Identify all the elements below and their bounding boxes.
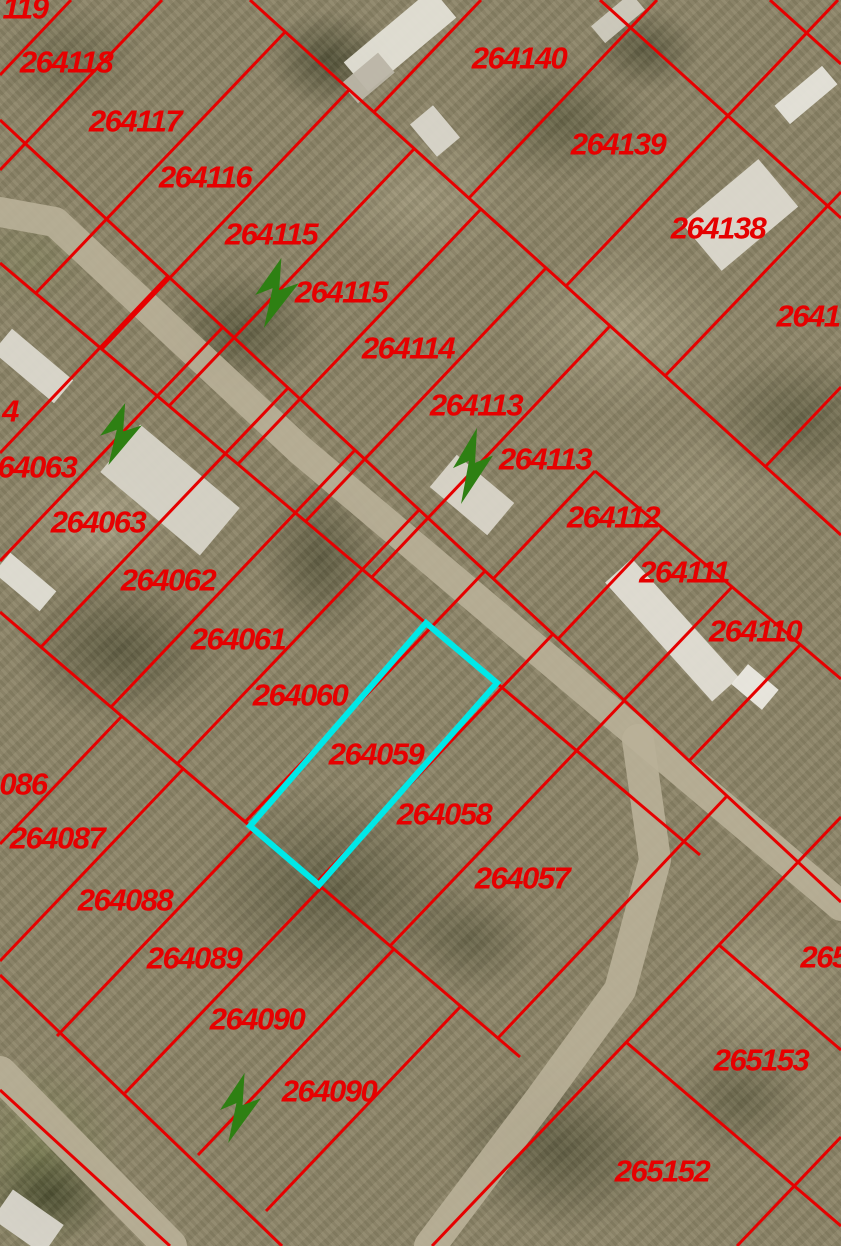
parcel-label: 265152 — [615, 1156, 709, 1187]
parcel-label: 264117 — [89, 106, 181, 137]
parcel-label: 264090 — [282, 1076, 376, 1107]
building-roof — [731, 664, 778, 710]
parcel-boundary-line — [198, 949, 394, 1155]
parcel-label: 264063 — [0, 452, 76, 483]
parcel-boundary-line — [0, 0, 162, 170]
parcel-label: 264138 — [671, 213, 765, 244]
building-roof — [0, 329, 73, 403]
building-roof — [0, 1189, 64, 1246]
parcel-label: 264115 — [295, 277, 387, 308]
parcel-label: 264088 — [78, 885, 172, 916]
parcel-label: 264059 — [329, 739, 423, 770]
parcel-label: 264115 — [225, 219, 317, 250]
green-arrow-icon — [255, 258, 299, 328]
parcel-label: 264139 — [571, 129, 665, 160]
parcel-label: 264058 — [397, 799, 491, 830]
parcel-label: 119 — [3, 0, 48, 24]
parcel-label: 264112 — [567, 502, 659, 533]
building-roof — [410, 105, 460, 156]
parcel-label: 264062 — [121, 565, 215, 596]
parcel-boundary-line — [266, 1006, 461, 1211]
parcel-label: 265 — [800, 942, 841, 973]
parcel-boundary-line — [765, 387, 841, 467]
parcel-label: 086 — [0, 769, 47, 800]
parcel-label: 264087 — [10, 823, 104, 854]
parcel-label: 264113 — [499, 444, 591, 475]
parcel-boundary-line — [125, 887, 322, 1093]
parcel-label: 265153 — [714, 1045, 808, 1076]
parcel-boundary-line — [737, 1137, 841, 1246]
parcel-label: 264116 — [159, 162, 251, 193]
parcel-label: 264111 — [639, 557, 729, 588]
parcel-label: 264113 — [430, 390, 522, 421]
parcel-label: 4 — [2, 396, 18, 427]
parcel-label: 2641 — [777, 301, 840, 332]
parcel-boundary-line — [469, 0, 657, 198]
parcel-label: 264089 — [147, 943, 241, 974]
parcel-label: 264057 — [475, 863, 569, 894]
parcel-label: 264118 — [20, 47, 112, 78]
building-roof — [0, 553, 56, 611]
parcel-label: 264140 — [472, 43, 566, 74]
parcel-label: 264090 — [210, 1004, 304, 1035]
parcel-label: 264114 — [362, 333, 454, 364]
parcel-label: 264110 — [709, 616, 801, 647]
parcel-label: 264060 — [253, 680, 347, 711]
parcel-label: 264061 — [191, 624, 285, 655]
building-roof — [775, 66, 838, 124]
parcel-map-viewport[interactable]: 1192641182641172641162641152641152641142… — [0, 0, 841, 1246]
green-arrow-icon — [220, 1073, 261, 1143]
parcel-label: 264063 — [51, 507, 145, 538]
